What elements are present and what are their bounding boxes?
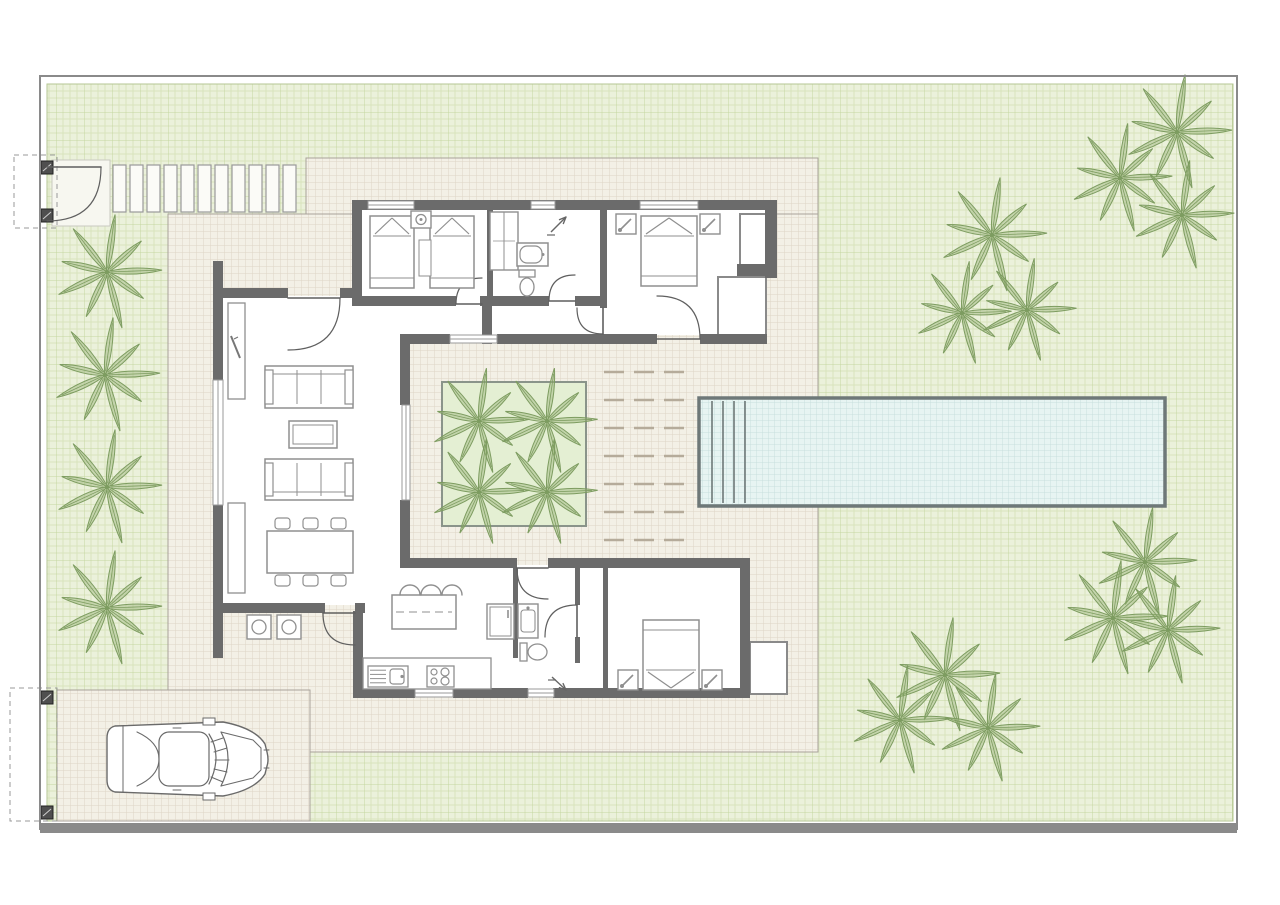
lamp-dot [618,228,622,232]
drain [542,253,545,256]
cistern [520,643,527,661]
sideboard-2 [228,503,245,593]
swimming-pool [699,398,1165,506]
chair [331,575,346,586]
glass-bay-north [718,277,766,343]
armrest [345,370,353,404]
wall [340,288,354,298]
palm-trunk [105,270,109,274]
sofa-1 [265,366,353,408]
palm-trunk [1166,628,1170,632]
mirror-left [203,718,215,725]
fridge [487,604,514,639]
palm-trunk [545,490,549,494]
chair [303,575,318,586]
wall [737,264,777,276]
courtyard [442,364,693,544]
armrest [265,463,273,496]
palm-trunk [1180,213,1184,217]
bowl [520,278,534,296]
palm-trunk [1143,560,1147,564]
toilet-2 [520,643,547,661]
boundary-wall-south [40,823,1237,833]
sofa [265,366,353,408]
chair [331,518,346,529]
wall [400,334,450,344]
palm-trunk [477,490,481,494]
bed-twin-b [430,216,474,288]
bed-master [641,216,697,286]
tall-unit [487,604,514,639]
wall [700,334,767,344]
walkway-slat [181,165,194,212]
armrest [345,463,353,496]
walkway-slat [232,165,245,212]
outdoor-unit-b [277,615,301,639]
palm-trunk [960,311,964,315]
wall [600,210,607,308]
lamp-dot [704,684,708,688]
armrest [265,370,273,404]
palm-trunk [1118,176,1122,180]
walkway-slat [249,165,262,212]
wall [213,261,223,380]
corner-nook [740,214,766,268]
cooktop [427,666,454,687]
palm-trunk [986,726,990,730]
sofa [265,459,353,500]
palm-trunk [105,606,109,610]
dining-table [267,518,353,586]
palm-trunk [477,419,481,423]
wall [213,505,223,658]
rug [419,240,431,276]
bathtub [517,243,548,266]
wood-deck [596,364,693,544]
nightstand-twin [411,211,431,228]
cooktop [427,666,454,687]
mirror-right [203,793,215,800]
lamp-dot [420,218,423,221]
site-plan-page [0,0,1280,905]
wall [213,288,288,298]
palm-trunk [105,485,109,489]
sideboard [228,503,245,593]
lamp-dot [702,228,706,232]
nightstand-guest-l [618,670,638,690]
chair [275,518,290,529]
car-top-view [107,718,269,800]
walkway-slat [215,165,228,212]
chair [303,518,318,529]
bed-guest [643,620,699,690]
wall [497,334,657,344]
palm-trunk [990,233,994,237]
toilet-1 [519,270,535,296]
lamp-dot [620,684,624,688]
tap [400,675,403,678]
walkway-slat [113,165,126,212]
sofa-2 [265,459,353,500]
palm-trunk [103,373,107,377]
palm-trunk [943,673,947,677]
appliance [247,615,271,639]
palm-trunk [1111,616,1115,620]
wall [352,200,777,210]
walkway-slat [283,165,296,212]
wall [740,558,750,698]
bed-frame [370,216,414,288]
palm-trunk [545,419,549,423]
bed-frame [430,216,474,288]
walkway-slat [130,165,143,212]
wall [548,558,750,568]
palm-trunk [1175,130,1179,134]
nightstand-master-r [700,214,720,234]
walkway-slat [198,165,211,212]
walkway-slat [266,165,279,212]
nightstand-master-l [616,214,636,234]
wall [352,296,456,306]
cistern [519,270,535,277]
outdoor-unit-a [247,615,271,639]
walkway-slat [164,165,177,212]
bowl [528,644,547,660]
bed-twin-a [370,216,414,288]
walkway-slat [147,165,160,212]
wall [353,611,363,690]
wall [400,558,517,568]
palm-trunk [1025,308,1029,312]
nightstand-guest-r [702,670,722,690]
wall [493,296,549,306]
wall [222,603,325,613]
tap [526,606,529,609]
wall [575,296,600,306]
kitchen-island [392,595,456,629]
chair [275,575,290,586]
dining-table [267,531,353,573]
wall [575,637,580,663]
wall [400,343,410,405]
palm-trunk [898,718,902,722]
kitchen-sink [368,666,408,687]
coffee-table [289,421,337,448]
wall [575,568,580,605]
bath2-sink [518,604,538,638]
wardrobe [490,212,518,270]
site-plan-drawing [0,0,1280,905]
wall [603,568,608,688]
glass-bay-south [750,642,787,694]
car-roof [159,732,209,786]
pedestrian-gate [14,155,110,228]
wall [400,500,410,563]
runner-rug [419,240,431,276]
pool-water [699,398,1165,506]
appliance [277,615,301,639]
